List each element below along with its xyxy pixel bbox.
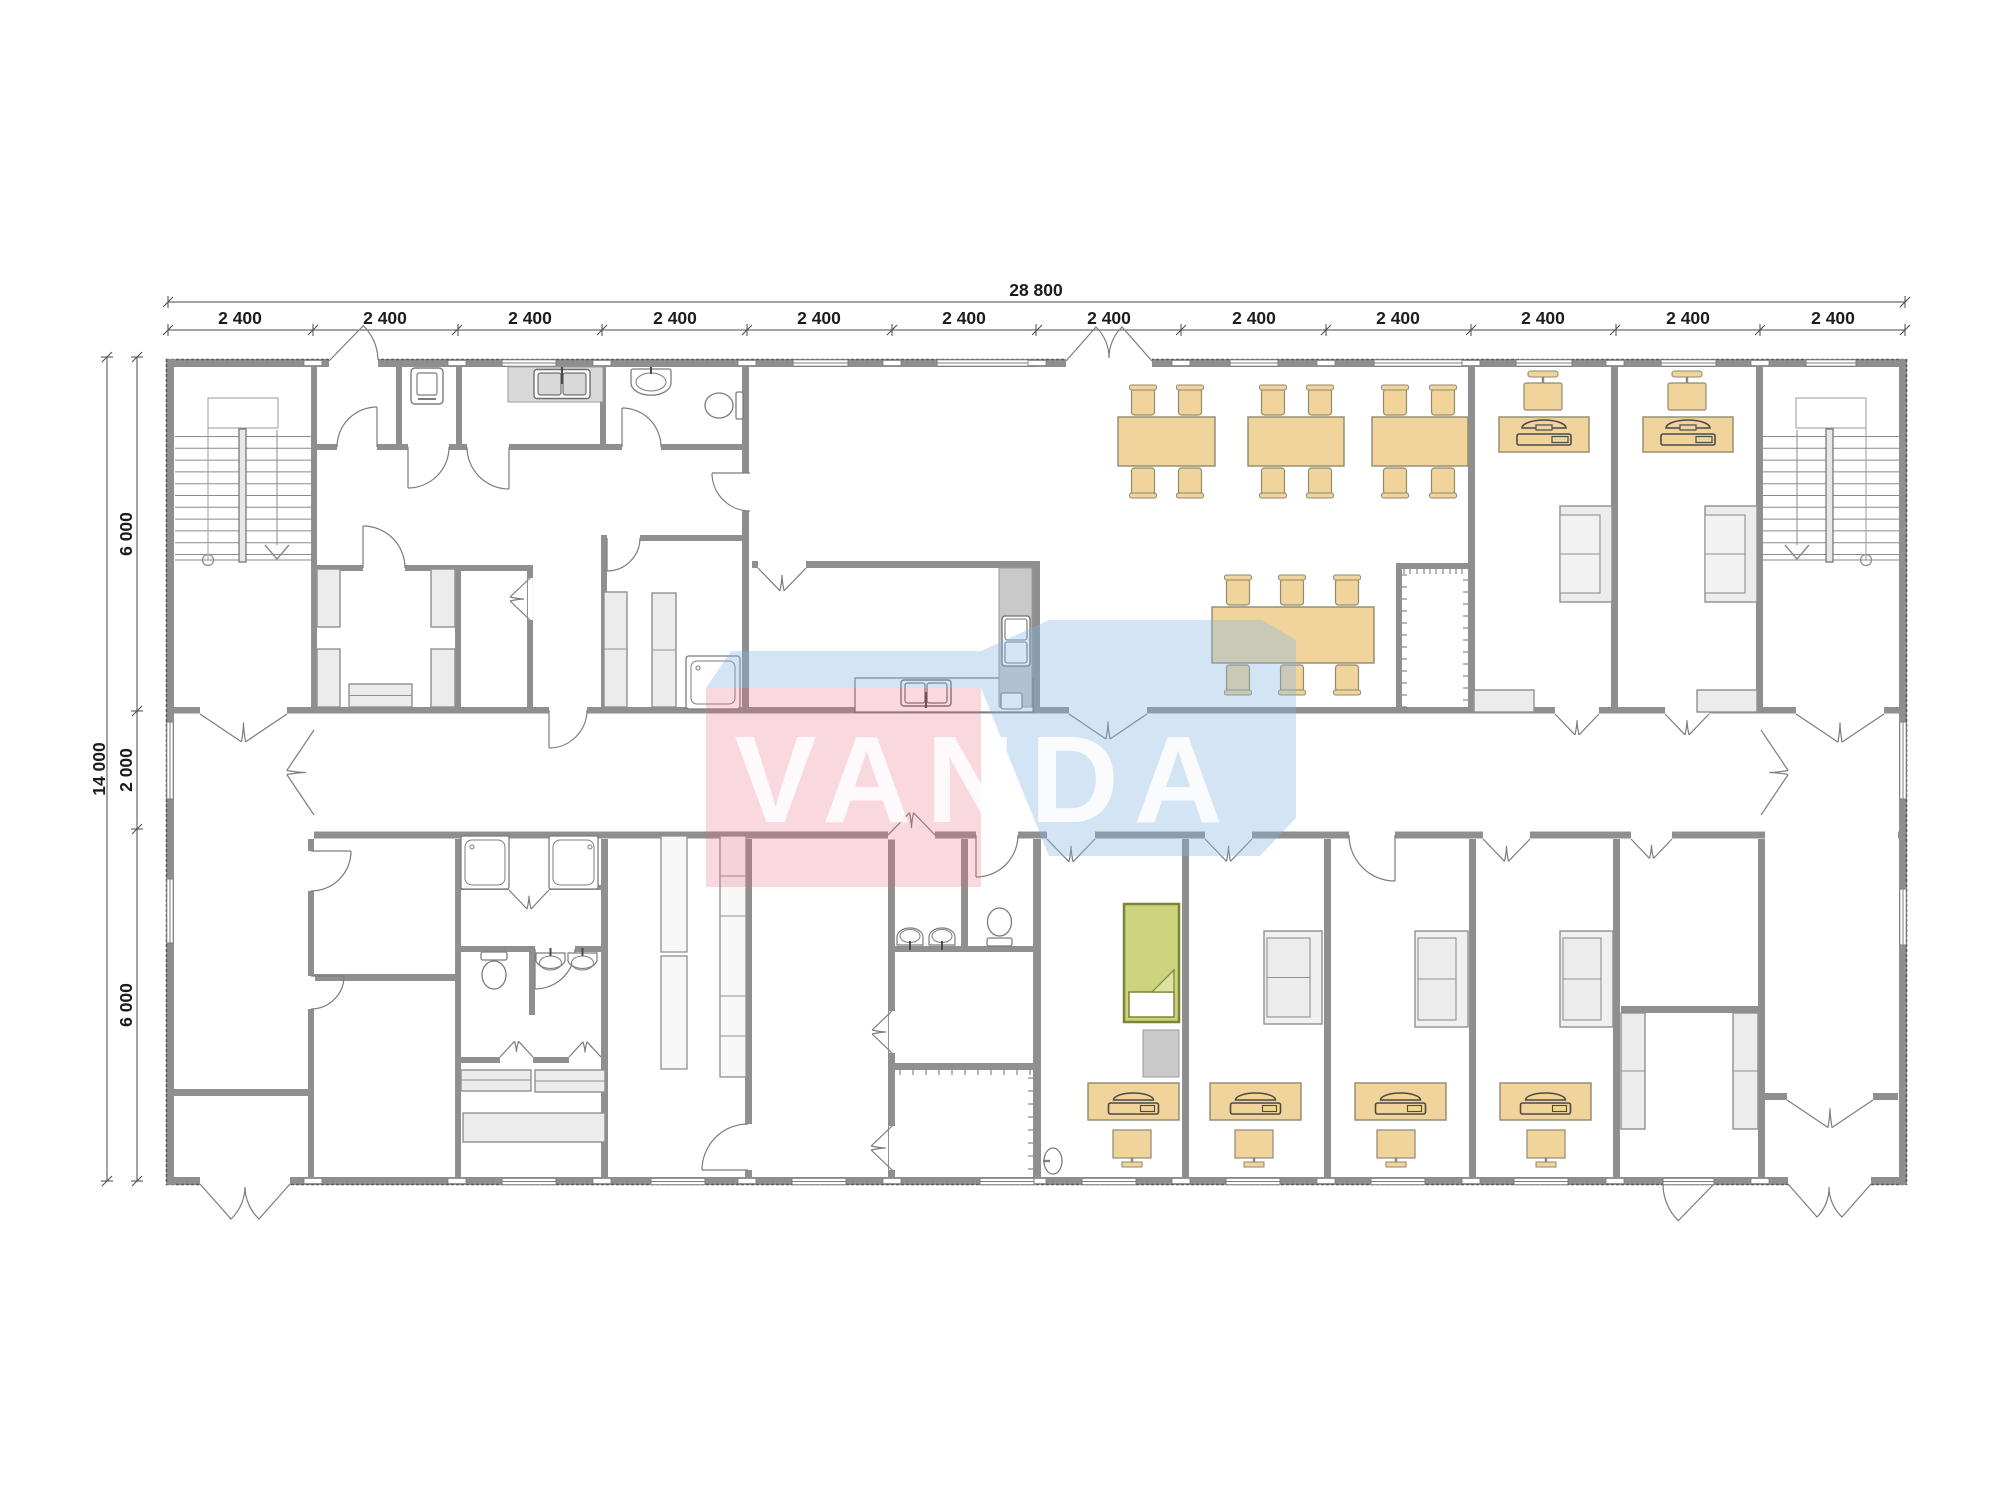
svg-text:2 400: 2 400 — [1232, 308, 1276, 328]
svg-text:6 000: 6 000 — [116, 512, 136, 556]
svg-text:2 400: 2 400 — [1666, 308, 1710, 328]
svg-text:2 000: 2 000 — [116, 748, 136, 792]
svg-text:2 400: 2 400 — [797, 308, 841, 328]
svg-text:2 400: 2 400 — [218, 308, 262, 328]
svg-text:2 400: 2 400 — [1376, 308, 1420, 328]
svg-text:VANDA: VANDA — [734, 712, 1237, 849]
svg-text:2 400: 2 400 — [653, 308, 697, 328]
svg-text:14 000: 14 000 — [89, 742, 109, 796]
svg-text:2 400: 2 400 — [508, 308, 552, 328]
svg-text:2 400: 2 400 — [363, 308, 407, 328]
svg-text:2 400: 2 400 — [1087, 308, 1131, 328]
svg-text:28 800: 28 800 — [1009, 280, 1063, 300]
svg-text:2 400: 2 400 — [1521, 308, 1565, 328]
svg-text:6 000: 6 000 — [116, 983, 136, 1027]
svg-text:2 400: 2 400 — [942, 308, 986, 328]
svg-text:2 400: 2 400 — [1811, 308, 1855, 328]
